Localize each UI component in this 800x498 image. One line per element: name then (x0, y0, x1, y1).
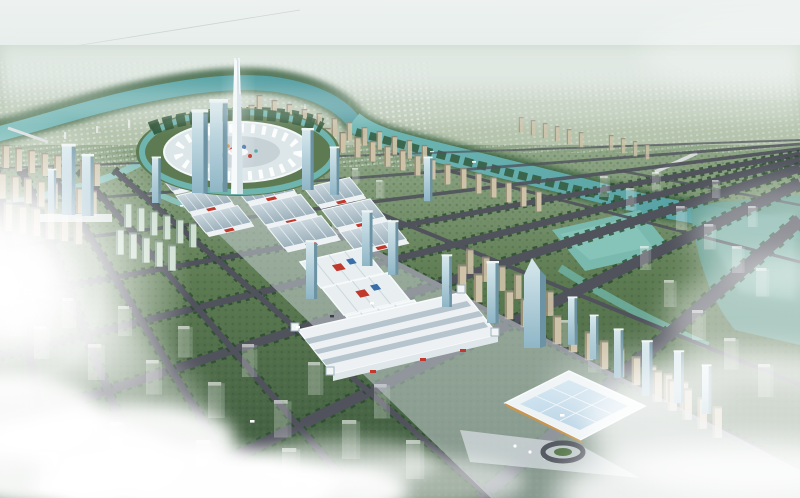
masterplan-aerial-rendering (0, 0, 800, 498)
scene-svg (0, 0, 800, 498)
slant-top-tower (524, 258, 540, 348)
